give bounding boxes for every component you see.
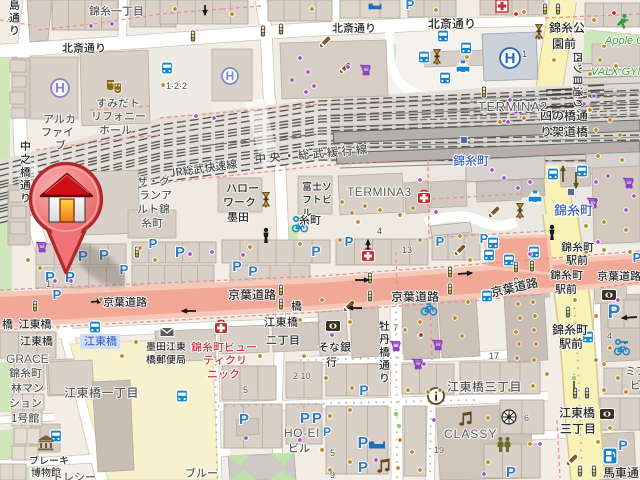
svg-text:1: 1 <box>522 49 527 59</box>
svg-text:H: H <box>226 69 235 83</box>
svg-text:P: P <box>312 410 322 427</box>
svg-text:1: 1 <box>46 279 51 289</box>
svg-text:5: 5 <box>243 385 248 395</box>
svg-text:4: 4 <box>607 331 612 341</box>
svg-text:H: H <box>505 50 516 67</box>
svg-text:P: P <box>358 435 369 452</box>
svg-text:H: H <box>55 81 65 96</box>
svg-text:5: 5 <box>330 448 335 458</box>
svg-text:13: 13 <box>402 245 412 255</box>
svg-text:7: 7 <box>393 323 398 333</box>
svg-text:17: 17 <box>489 351 499 361</box>
svg-text:HO-EI: HO-EI <box>284 426 320 440</box>
svg-text:P: P <box>175 244 185 261</box>
svg-text:P: P <box>149 236 158 251</box>
svg-text:2 10: 2 10 <box>293 371 311 381</box>
svg-text:P: P <box>239 411 249 428</box>
svg-text:P: P <box>359 382 368 398</box>
svg-text:9: 9 <box>330 470 335 480</box>
svg-text:Apple G: Apple G <box>604 35 640 47</box>
svg-text:1·2·2: 1·2·2 <box>166 81 187 91</box>
svg-text:19: 19 <box>434 445 444 455</box>
svg-text:P: P <box>406 0 415 12</box>
svg-text:TERMINA3: TERMINA3 <box>347 185 412 199</box>
svg-text:CLASSY: CLASSY <box>444 427 497 441</box>
svg-text:P: P <box>248 263 257 279</box>
svg-text:P: P <box>633 250 640 265</box>
svg-text:GRACE: GRACE <box>6 352 49 366</box>
svg-text:P: P <box>345 234 354 249</box>
svg-text:P: P <box>358 459 368 476</box>
svg-text:P: P <box>608 302 621 323</box>
svg-text:P: P <box>323 425 331 439</box>
svg-text:VALX GYM: VALX GYM <box>591 66 640 78</box>
svg-text:6: 6 <box>524 413 529 423</box>
svg-text:P: P <box>618 437 627 453</box>
svg-text:P: P <box>506 464 516 480</box>
svg-text:TERMINA2: TERMINA2 <box>478 99 548 114</box>
svg-text:P: P <box>311 243 320 259</box>
svg-text:P: P <box>300 410 310 427</box>
svg-text:P: P <box>436 234 445 249</box>
svg-text:4: 4 <box>377 226 382 236</box>
svg-text:P: P <box>232 258 241 274</box>
svg-text:P: P <box>53 287 62 302</box>
